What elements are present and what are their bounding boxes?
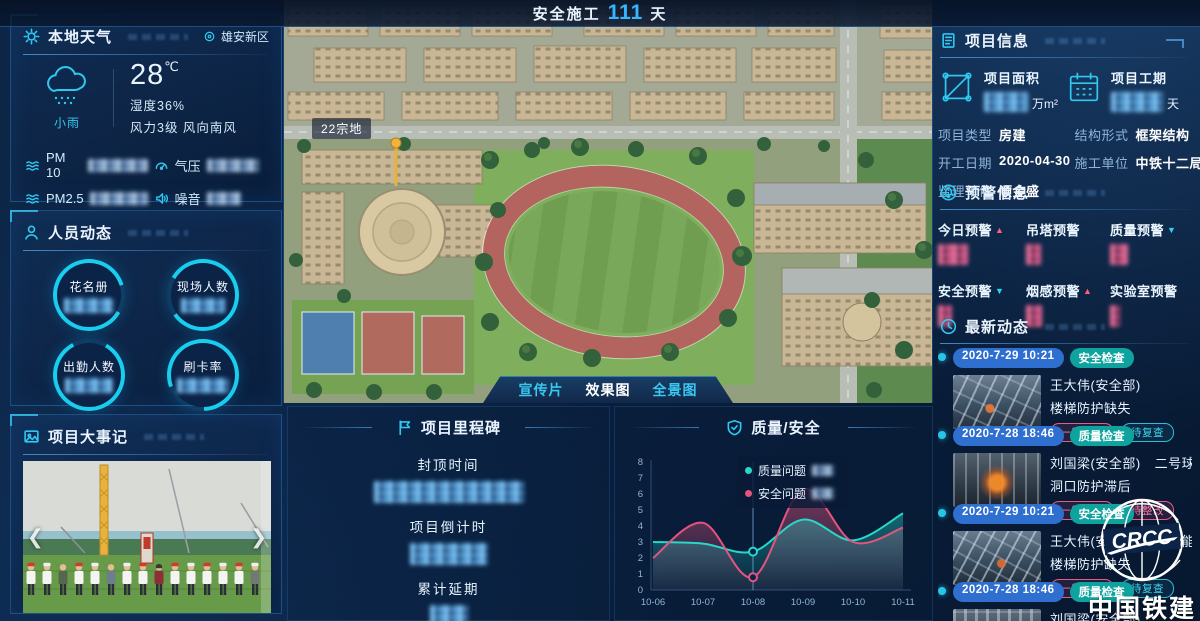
chart-tooltip: 质量问题 安全问题 (737, 456, 849, 508)
today-alerts: 今日预警▲ (938, 220, 1026, 265)
entry-time-chip: 2020-7-29 10:21 (953, 348, 1064, 368)
region-selector[interactable]: 雄安新区 (203, 28, 269, 45)
panorama-button[interactable]: 全景图 (653, 380, 698, 400)
crcc-logo: CRCC 中国铁建 (1084, 496, 1200, 621)
start-date-field: 开工日期2020-04-30 (938, 153, 1071, 172)
y-axis-tick: 3 (638, 537, 643, 548)
legend-value-redacted (812, 488, 834, 499)
entry-photo-thumbnail[interactable] (953, 453, 1041, 507)
legend-safety: 安全问题 (745, 485, 841, 502)
rain-cloud-icon (42, 65, 92, 107)
y-axis-tick: 8 (638, 457, 643, 468)
project-info-title: 项目信息 (965, 30, 1029, 51)
pm10-value-redacted (88, 159, 148, 172)
panel-deco (128, 230, 188, 236)
project-info-panel: 项目信息 项目面积 万m² (938, 22, 1192, 172)
project-events-panel: 项目大事记 (10, 414, 282, 614)
quality-alerts-redacted (1110, 244, 1128, 265)
safety-series-dot (745, 490, 752, 497)
pm25-value-redacted (90, 192, 148, 205)
x-axis-tick: 10-11 (891, 597, 915, 608)
project-duration-stat: 项目工期 天 (1065, 68, 1192, 112)
area-unit: 万m² (1032, 95, 1058, 112)
milestone-label: 封顶时间 (288, 454, 609, 474)
roster-gauge: 花名册 (53, 259, 125, 331)
trend-up-icon: ▲ (995, 225, 1004, 235)
weather-current: 小雨 28℃ 湿度36% 风力3级 风向南风 (21, 59, 271, 136)
weather-condition: 小雨 (21, 114, 113, 131)
events-panel-title: 项目大事记 (48, 426, 128, 447)
area-label: 项目面积 (984, 68, 1058, 87)
weather-panel-title: 本地天气 (48, 26, 112, 47)
carousel-next-arrow[interactable]: ❯ (250, 525, 267, 550)
gauge-label: 刷卡率 (183, 358, 222, 375)
region-label: 雄安新区 (221, 28, 269, 45)
map-view-switcher: 宣传片 效果图 全景图 (483, 376, 733, 403)
location-icon (203, 30, 216, 43)
panel-deco (1045, 38, 1105, 44)
duration-value-redacted (1111, 92, 1163, 112)
topping-time-item: 封顶时间 (288, 454, 609, 503)
gauge-label: 出勤人数 (63, 358, 115, 375)
noise-metric: 噪音 (154, 189, 267, 208)
trend-up-icon: ▲ (1083, 286, 1092, 296)
corner-bracket (1166, 39, 1184, 48)
y-axis-tick: 4 (638, 521, 643, 532)
group-photo-illustration (23, 461, 271, 613)
wind: 风力3级 风向南风 (130, 117, 237, 136)
milestone-label: 累计延期 (288, 578, 609, 598)
area-value-redacted (984, 92, 1028, 112)
crane-alerts-redacted (1026, 244, 1041, 265)
y-axis-tick: 2 (638, 553, 643, 564)
legend-label: 安全问题 (758, 485, 806, 502)
entry-type-chip: 安全检查 (1070, 348, 1134, 368)
flag-icon (396, 419, 413, 436)
x-axis-tick: 10-07 (691, 597, 715, 608)
carousel-prev-arrow[interactable]: ❮ (27, 525, 44, 550)
crcc-name: 中国铁建 (1084, 589, 1200, 621)
topping-time-redacted (374, 481, 524, 503)
metric-label: PM2.5 (46, 191, 84, 206)
legend-quality: 质量问题 (745, 462, 841, 479)
weather-metrics: PM 10 气压 PM2.5 噪音 (25, 150, 267, 208)
entry-time-chip: 2020-7-28 18:46 (953, 582, 1064, 602)
calendar-icon (1065, 68, 1103, 106)
timeline-dot (938, 353, 946, 361)
x-axis-tick: 10-09 (791, 597, 815, 608)
metric-label: 噪音 (175, 189, 201, 208)
clock-icon (940, 318, 957, 335)
crane-alerts: 吊塔预警 (1026, 220, 1110, 265)
personnel-gauges: 花名册 现场人数 出勤人数 刷卡率 (11, 251, 281, 411)
safety-days-unit: 天 (650, 3, 667, 24)
countdown-redacted (410, 543, 488, 565)
pm10-metric: PM 10 (25, 150, 148, 180)
countdown-item: 项目倒计时 (288, 516, 609, 565)
quality-safety-chart[interactable]: 012345678 10-0610-0710-0810-0910-1010-11… (615, 440, 932, 621)
document-icon (940, 32, 957, 49)
metric-label: PM 10 (46, 150, 82, 180)
bell-icon (940, 184, 957, 201)
feed-panel-title: 最新动态 (965, 316, 1029, 337)
temperature: 28℃ (130, 59, 237, 92)
mist-icon (25, 158, 40, 173)
sun-icon (23, 28, 40, 45)
legend-value-redacted (812, 465, 834, 476)
duration-unit: 天 (1167, 95, 1179, 112)
y-axis-tick: 5 (638, 505, 643, 516)
quality-alerts: 质量预警▼ (1110, 220, 1192, 265)
person-icon (23, 224, 40, 241)
onsite-value-redacted (181, 298, 225, 313)
trend-down-icon: ▼ (995, 286, 1004, 296)
entry-time-chip: 2020-7-29 10:21 (953, 504, 1064, 524)
alerts-panel: 预警信息 今日预警▲ 吊塔预警 质量预警▼ 安全预警▼ 烟感预警▲ (938, 174, 1192, 308)
entry-type-chip: 质量检查 (1070, 426, 1134, 446)
pm25-metric: PM2.5 (25, 189, 148, 208)
roster-value-redacted (64, 298, 114, 313)
pressure-value-redacted (207, 159, 259, 172)
speaker-icon (154, 191, 169, 206)
project-stats: 项目面积 万m² 项目工期 天 (938, 68, 1192, 112)
panel-deco (144, 434, 204, 440)
y-axis-tick: 6 (638, 489, 643, 500)
pressure-metric: 气压 (154, 150, 267, 180)
contractor-field: 施工单位中铁十二局 (1075, 153, 1200, 172)
entry-location: 二号球馆 (1155, 453, 1192, 472)
weather-panel: 本地天气 雄安新区 小雨 28℃ 湿度36% 风力3级 (10, 14, 282, 202)
panel-deco (128, 34, 188, 40)
attendance-gauge: 出勤人数 (53, 339, 125, 411)
y-axis-tick: 1 (638, 569, 643, 580)
area-measure-icon (938, 68, 976, 106)
noise-value-redacted (207, 192, 241, 205)
y-axis-tick: 7 (638, 473, 643, 484)
onsite-count-gauge: 现场人数 (167, 259, 239, 331)
delay-item: 累计延期 (288, 578, 609, 621)
milestone-label: 项目倒计时 (288, 516, 609, 536)
legend-label: 质量问题 (758, 462, 806, 479)
milestone-panel-title: 项目里程碑 (421, 417, 501, 438)
shield-icon (726, 419, 743, 436)
metric-label: 气压 (175, 156, 201, 175)
humidity: 湿度36% (130, 95, 237, 114)
x-axis-tick: 10-06 (641, 597, 665, 608)
y-axis-tick: 0 (638, 585, 643, 596)
safety-days-label: 安全施工 (533, 3, 601, 24)
x-axis-tick: 10-08 (741, 597, 765, 608)
duration-label: 项目工期 (1111, 68, 1179, 87)
milestone-panel: 项目里程碑 封顶时间 项目倒计时 累计延期 (287, 406, 610, 621)
entry-issue: 洞口防护滞后 (1050, 476, 1192, 495)
aerial-map-view[interactable]: 22宗地 宣传片 效果图 全景图 (283, 0, 933, 403)
timeline-dot (938, 431, 946, 439)
mist-icon (25, 191, 40, 206)
personnel-panel-title: 人员动态 (48, 222, 112, 243)
quality-series-dot (745, 467, 752, 474)
parcel-label[interactable]: 22宗地 (312, 118, 371, 139)
project-type-field: 项目类型房建 (938, 125, 1071, 144)
entry-person: 刘国梁(安全部) (1050, 453, 1141, 472)
top-header-bar: 安全施工 111 天 (0, 0, 1200, 27)
entry-person: 王大伟(安全部) (1050, 375, 1141, 394)
entry-photo-thumbnail[interactable] (953, 531, 1041, 585)
panel-deco (1045, 324, 1105, 330)
panel-deco (1045, 190, 1105, 196)
entry-time-chip: 2020-7-28 18:46 (953, 426, 1064, 446)
render-view-button[interactable]: 效果图 (586, 380, 631, 400)
timeline-dot (938, 509, 946, 517)
structure-type-field: 结构形式框架结构 (1075, 125, 1200, 144)
aerial-scene-illustration (284, 0, 933, 403)
today-alerts-redacted (938, 244, 968, 265)
swipe-rate-gauge: 刷卡率 (167, 339, 239, 411)
gauge-icon (154, 158, 169, 173)
gauge-label: 花名册 (69, 278, 108, 295)
trend-down-icon: ▼ (1167, 225, 1176, 235)
entry-issue: 楼梯防护缺失 (1050, 398, 1174, 417)
swipe-rate-value-redacted (177, 378, 229, 393)
entry-photo-thumbnail[interactable] (953, 375, 1041, 429)
attendance-value-redacted (65, 378, 113, 393)
entry-photo-thumbnail[interactable] (953, 609, 1041, 621)
quality-safety-title: 质量/安全 (751, 417, 820, 438)
delay-redacted (430, 605, 468, 621)
crcc-globe-icon: CRCC (1096, 496, 1188, 584)
personnel-panel: 人员动态 花名册 现场人数 出勤人数 刷卡率 (10, 210, 282, 406)
dashboard-root: 22宗地 宣传片 效果图 全景图 安全施工 111 天 本地天气 雄安新区 (0, 0, 1200, 621)
safety-days-count: 111 (608, 1, 644, 25)
photo-icon (23, 428, 40, 445)
events-photo-carousel[interactable]: ❮ ❯ (23, 461, 271, 613)
quality-safety-panel: 质量/安全 012345678 10-0610-0710-0810-0910-1… (614, 406, 933, 621)
alerts-panel-title: 预警信息 (965, 182, 1029, 203)
x-axis-tick: 10-10 (841, 597, 865, 608)
project-area-stat: 项目面积 万m² (938, 68, 1065, 112)
promo-video-button[interactable]: 宣传片 (519, 380, 564, 400)
gauge-label: 现场人数 (177, 278, 229, 295)
timeline-dot (938, 587, 946, 595)
